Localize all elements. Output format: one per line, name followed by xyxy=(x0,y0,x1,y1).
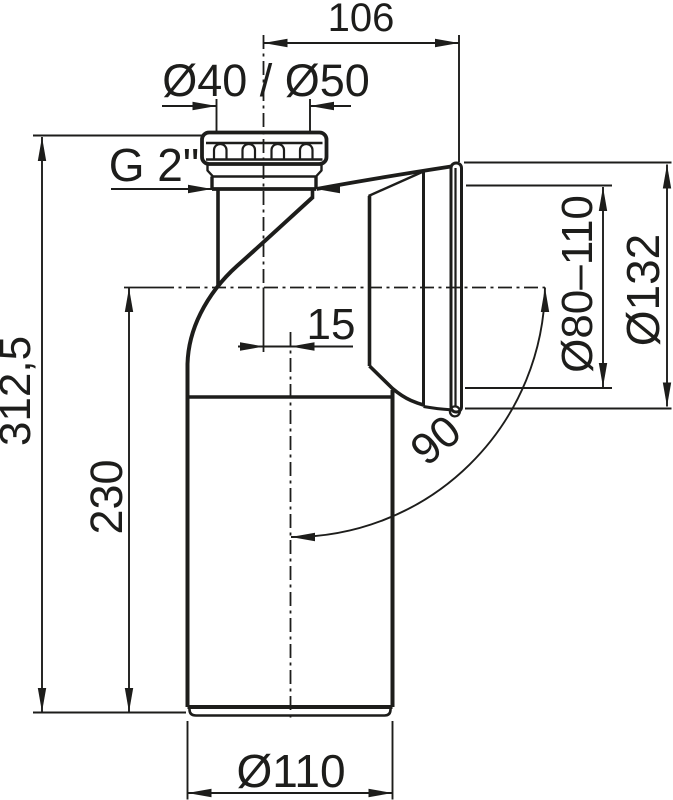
arrowhead xyxy=(663,383,671,407)
arrowhead xyxy=(264,39,288,47)
dimension-body-height: 230 xyxy=(81,288,133,712)
arrowhead xyxy=(663,165,671,189)
dim-label-socket-inner: Ø80–110 xyxy=(553,195,602,373)
dim-label-outlet-diameter: Ø110 xyxy=(236,745,345,797)
socket-cone-bottom-edge xyxy=(370,366,424,405)
dimension-center-offset: 15 xyxy=(238,300,355,351)
arrowhead xyxy=(38,137,46,161)
elbow-sweep-and-left-edge xyxy=(188,197,314,707)
dim-label-total-height: 312,5 xyxy=(0,336,40,446)
arrowhead xyxy=(188,789,212,797)
dim-label-socket-outer: Ø132 xyxy=(617,234,669,347)
dim-label-thread-size: G 2" xyxy=(109,139,199,191)
arrowhead xyxy=(435,39,459,47)
cap-slot-4 xyxy=(300,144,313,159)
arrowhead xyxy=(38,688,46,712)
dimension-thread-size: G 2" xyxy=(109,139,340,193)
arrowhead xyxy=(240,342,264,350)
technical-drawing-canvas: 106 Ø40 / Ø50 G 2" 15 312,5 23 xyxy=(0,0,673,800)
arrowhead xyxy=(369,789,393,797)
dim-label-center-offset: 15 xyxy=(307,300,356,349)
dimension-outlet-diameter: Ø110 xyxy=(188,721,393,800)
dim-label-body-height: 230 xyxy=(81,459,132,534)
arrowhead xyxy=(125,288,133,312)
cap-slot-2 xyxy=(243,144,256,159)
cap-slot-1 xyxy=(214,144,227,159)
dim-label-top-width: 106 xyxy=(328,0,395,40)
arrowhead xyxy=(541,288,549,313)
elbow-drawing: 106 Ø40 / Ø50 G 2" 15 312,5 23 xyxy=(0,0,673,800)
cap-slot-3 xyxy=(272,144,285,159)
arrowhead xyxy=(125,688,133,712)
dimension-inlet-diameter: Ø40 / Ø50 xyxy=(162,55,370,132)
dim-label-inlet-diameter: Ø40 / Ø50 xyxy=(162,55,370,106)
arrowhead xyxy=(291,533,315,541)
dimension-socket-inner: Ø80–110 xyxy=(465,186,612,389)
dimension-total-height: 312,5 xyxy=(0,136,202,713)
